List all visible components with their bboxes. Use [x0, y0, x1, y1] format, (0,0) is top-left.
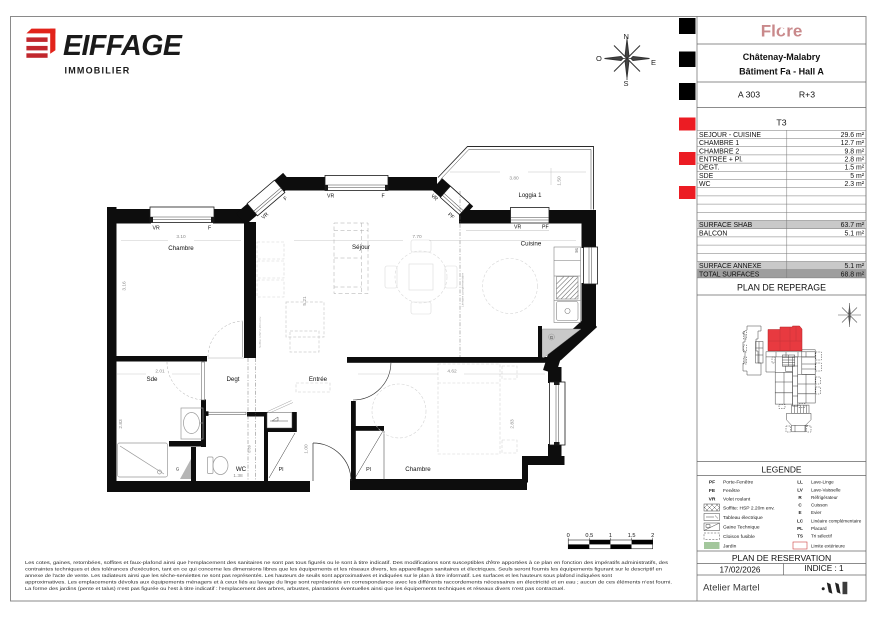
svg-text:CHAMBRE 2: CHAMBRE 2	[699, 148, 739, 155]
svg-text:5.1 m²: 5.1 m²	[844, 263, 864, 270]
svg-text:SDE: SDE	[699, 173, 714, 180]
svg-text:3.80: 3.80	[509, 176, 519, 182]
svg-text:SEJOUR - CUISINE: SEJOUR - CUISINE	[699, 132, 761, 139]
svg-text:O: O	[596, 54, 602, 63]
svg-text:G: G	[176, 467, 180, 472]
svg-text:2.8 m²: 2.8 m²	[844, 157, 864, 164]
svg-text:G: G	[550, 335, 554, 340]
svg-text:PL: PL	[797, 526, 803, 531]
svg-text:Pl: Pl	[279, 467, 284, 473]
svg-text:3.10: 3.10	[176, 234, 186, 240]
svg-text:Châtenay-Malabry: Châtenay-Malabry	[743, 52, 821, 62]
svg-text:Soffite: HSP 2.20m env.: Soffite: HSP 2.20m env.	[258, 316, 262, 348]
svg-text:VR: VR	[261, 212, 271, 221]
svg-text:2.83: 2.83	[510, 419, 516, 429]
svg-text:1.5 m²: 1.5 m²	[844, 165, 864, 172]
svg-text:ENTREE + Pl.: ENTREE + Pl.	[699, 157, 743, 164]
svg-text:Chambre: Chambre	[405, 466, 431, 473]
svg-text:F: F	[283, 195, 289, 202]
svg-text:Atelier Martel: Atelier Martel	[703, 583, 760, 594]
svg-text:VR: VR	[514, 225, 521, 231]
svg-text:PLAN DE RESERVATION: PLAN DE RESERVATION	[732, 553, 831, 563]
svg-text:4.62: 4.62	[447, 369, 457, 375]
svg-text:CHAMBRE 1: CHAMBRE 1	[699, 140, 739, 147]
svg-text:2.01: 2.01	[155, 369, 165, 375]
svg-text:IMMOBILIER: IMMOBILIER	[65, 66, 131, 76]
svg-text:63.7 m²: 63.7 m²	[841, 222, 865, 229]
svg-text:PF: PF	[709, 479, 715, 485]
svg-text:Flore: Flore	[761, 22, 803, 41]
svg-text:E: E	[798, 510, 801, 515]
svg-text:Soffite: HSP 2.20m env.: Soffite: HSP 2.20m env.	[723, 505, 775, 511]
svg-text:T3: T3	[776, 118, 786, 128]
svg-text:Tri sélectif: Tri sélectif	[811, 534, 832, 539]
svg-text:68.8 m²: 68.8 m²	[841, 271, 865, 278]
svg-text:Jardin: Jardin	[723, 543, 737, 549]
svg-text:R+3: R+3	[799, 90, 815, 100]
svg-text:Limite extérieure: Limite extérieure	[811, 543, 845, 548]
svg-text:EIFFAGE: EIFFAGE	[63, 30, 183, 62]
svg-text:Gaine Technique: Gaine Technique	[723, 525, 760, 531]
svg-text:Cloison fusible: Cloison fusible	[723, 534, 755, 540]
svg-text:2.3 m²: 2.3 m²	[844, 181, 864, 188]
svg-text:Réfrigérateur: Réfrigérateur	[811, 495, 838, 500]
svg-text:Loggia 1: Loggia 1	[518, 193, 542, 199]
svg-text:F: F	[382, 194, 385, 200]
svg-text:1.00: 1.00	[304, 444, 310, 454]
svg-text:Lave-Linge: Lave-Linge	[811, 479, 834, 484]
svg-text:12.7 m²: 12.7 m²	[841, 140, 865, 147]
svg-text:5 m²: 5 m²	[850, 173, 864, 180]
svg-text:Degt: Degt	[226, 376, 239, 383]
svg-text:La forme des jardins (pente et: La forme des jardins (pente et talus) n'…	[25, 586, 565, 591]
svg-text:DEGT.: DEGT.	[699, 165, 719, 172]
svg-text:Séjour: Séjour	[352, 244, 370, 251]
svg-text:3.16: 3.16	[122, 281, 128, 291]
svg-text:N: N	[624, 32, 629, 41]
svg-text:LV: LV	[797, 487, 803, 492]
svg-text:contraintes techniques et des: contraintes techniques et des tolérances…	[25, 566, 663, 571]
svg-text:F: F	[208, 226, 211, 232]
svg-text:TOTAL SURFACES: TOTAL SURFACES	[699, 271, 760, 278]
svg-text:SURFACE ANNEXE: SURFACE ANNEXE	[699, 263, 762, 270]
svg-text:5.21: 5.21	[302, 296, 308, 306]
svg-text:Linéaire complémentaire: Linéaire complémentaire	[461, 273, 465, 307]
svg-text:17/02/2026: 17/02/2026	[720, 565, 761, 574]
svg-text:Pl: Pl	[366, 467, 371, 473]
svg-text:WC: WC	[236, 466, 247, 473]
svg-text:annexe de l'acte de vente. Les: annexe de l'acte de vente. Les radiateur…	[25, 573, 613, 578]
svg-text:Evier: Evier	[811, 510, 822, 515]
svg-text:7.70: 7.70	[412, 234, 422, 240]
svg-text:Lave-Vaisselle: Lave-Vaisselle	[811, 487, 841, 492]
svg-text:VR: VR	[153, 226, 160, 232]
svg-text:PF: PF	[446, 212, 455, 221]
svg-text:TS: TS	[797, 534, 803, 539]
svg-text:Linéaire complémentaire: Linéaire complémentaire	[811, 518, 862, 523]
svg-text:5.1 m²: 5.1 m²	[844, 230, 864, 237]
svg-text:1.50: 1.50	[557, 176, 563, 186]
svg-text:INDICE : 1: INDICE : 1	[804, 564, 844, 573]
svg-text:BALCON: BALCON	[699, 230, 727, 237]
svg-text:PLAN DE REPERAGE: PLAN DE REPERAGE	[737, 283, 826, 293]
svg-text:Sde: Sde	[146, 376, 158, 383]
svg-text:9.8 m²: 9.8 m²	[844, 148, 864, 155]
svg-text:Volet roulant: Volet roulant	[723, 496, 751, 502]
svg-text:VR: VR	[709, 496, 716, 502]
svg-text:Cuisson: Cuisson	[811, 502, 828, 507]
svg-text:0.69: 0.69	[247, 444, 252, 453]
svg-text:Cuisine: Cuisine	[521, 241, 542, 248]
svg-text:approximatives. Les emplacemen: approximatives. Les emplacements dévolus…	[25, 579, 672, 584]
svg-text:E: E	[651, 58, 656, 67]
svg-text:Tableau électrique: Tableau électrique	[723, 515, 763, 521]
svg-text:PF: PF	[542, 225, 549, 231]
svg-text:C: C	[798, 502, 802, 507]
svg-text:Les cotes, gaines, retombées,: Les cotes, gaines, retombées, soffites e…	[25, 560, 669, 565]
svg-text:A 303: A 303	[738, 90, 760, 100]
svg-text:SE: SE	[575, 248, 579, 254]
svg-text:Bâtiment Fa - Hall A: Bâtiment Fa - Hall A	[739, 67, 824, 77]
svg-text:LL: LL	[797, 479, 803, 484]
svg-text:SURFACE SHAB: SURFACE SHAB	[699, 222, 753, 229]
svg-text:R: R	[798, 495, 802, 500]
svg-text:1.38: 1.38	[233, 473, 243, 479]
svg-text:FE: FE	[709, 488, 716, 494]
svg-text:Porte-Fenêtre: Porte-Fenêtre	[723, 479, 753, 485]
svg-text:VR: VR	[327, 194, 334, 200]
svg-text:LEGENDE: LEGENDE	[761, 465, 801, 475]
svg-text:Placard: Placard	[811, 526, 827, 531]
svg-text:29.6 m²: 29.6 m²	[841, 132, 865, 139]
svg-text:LC: LC	[797, 518, 804, 523]
svg-text:2.83: 2.83	[118, 419, 124, 429]
svg-text:WC: WC	[699, 181, 711, 188]
svg-text:Fenêtre: Fenêtre	[723, 488, 740, 494]
svg-text:Chambre: Chambre	[168, 245, 194, 252]
svg-text:S: S	[624, 79, 629, 88]
svg-text:Entrée: Entrée	[309, 376, 328, 383]
